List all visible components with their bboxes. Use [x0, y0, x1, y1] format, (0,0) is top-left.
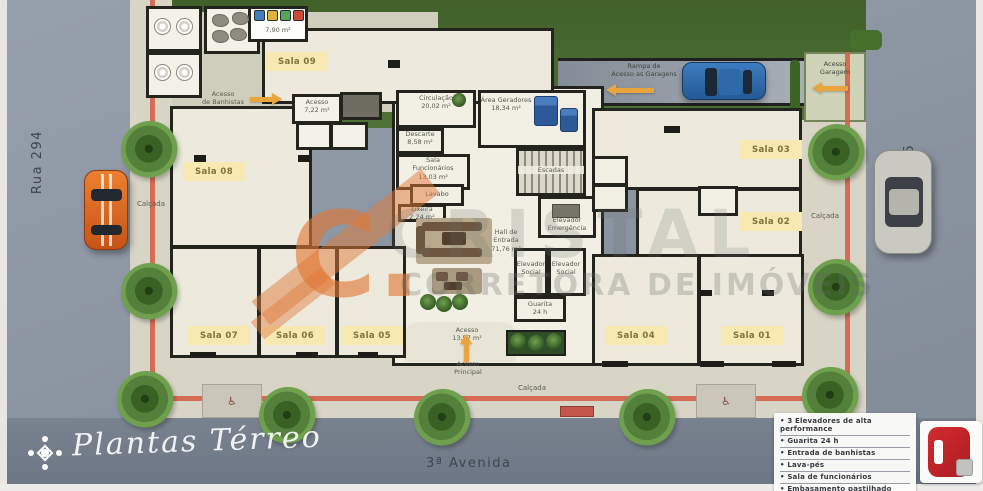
- door-step: [772, 361, 796, 367]
- brand-logo-notch: [934, 440, 943, 464]
- room-label-sala-08: Sala 08: [183, 162, 245, 181]
- gas-meter: [212, 30, 229, 43]
- door-step: [190, 352, 216, 358]
- silver-car-roof: [889, 189, 919, 215]
- wc-room: [592, 184, 628, 212]
- coffee-table: [442, 232, 466, 245]
- planter-bush: [528, 335, 544, 351]
- arrow-head: [606, 84, 616, 96]
- door-step: [602, 361, 628, 367]
- arrow-bar: [822, 86, 848, 91]
- accessible-ramp: ♿: [202, 384, 262, 418]
- legend: 3 Elevadores de alta performance Guarita…: [774, 413, 916, 491]
- street-left-label: Rua 294: [30, 130, 45, 194]
- planter-bush: [546, 333, 562, 349]
- room-label-text: Sala 03: [752, 145, 790, 155]
- palm-tree: [619, 389, 677, 447]
- legend-item: Embasamento pastilhado: [780, 484, 910, 491]
- room-label-text: Sala 08: [195, 167, 233, 177]
- brand-logo-gray-square: [956, 459, 973, 476]
- calcada-right-label: Calçada: [804, 212, 846, 221]
- room-label-sala-03: Sala 03: [740, 140, 802, 159]
- descarte-label: Descarte 8,58 m²: [396, 130, 444, 147]
- wc-room: [296, 122, 332, 150]
- edge-strip-left: [0, 0, 7, 491]
- palm-tree: [117, 371, 175, 429]
- wc-room: [330, 122, 368, 150]
- area-geradores-label: Área Geradores 18,34 m²: [480, 96, 532, 113]
- planter-bush: [510, 333, 526, 349]
- column: [298, 155, 310, 162]
- recycle-bin-red: [293, 10, 304, 21]
- generator: [534, 96, 558, 126]
- lixeiras-area-label: 7,90 m²: [252, 26, 304, 34]
- orange-car-rear-window: [91, 225, 122, 235]
- indoor-plant: [436, 296, 452, 312]
- room-label-text: Sala 04: [617, 331, 655, 341]
- blue-car-roof: [719, 69, 741, 95]
- principal-arrow: [460, 334, 472, 362]
- acesso-principal-label: Acesso Principal: [440, 360, 496, 377]
- calcada-left-label: Calçada: [132, 200, 170, 209]
- indoor-plant: [452, 294, 468, 310]
- ornament-diamond: [37, 445, 54, 462]
- wheelchair-icon: ♿: [721, 395, 731, 408]
- wheelchair-icon: ♿: [227, 395, 237, 408]
- orange-car-stripe: [101, 174, 104, 246]
- generator: [560, 108, 578, 132]
- calcada-bottom-label: Calçada: [510, 384, 554, 393]
- room-label-text: Sala 06: [276, 331, 314, 341]
- recycle-bin-green: [280, 10, 291, 21]
- column: [762, 290, 774, 296]
- room-label-sala-01: Sala 01: [721, 326, 783, 345]
- palm-tree: [414, 389, 472, 447]
- column: [664, 126, 680, 133]
- tactile-stripe-right: [845, 52, 850, 418]
- brand-logo: [920, 421, 982, 483]
- door-step: [700, 361, 724, 367]
- recycle-bin-blue: [254, 10, 265, 21]
- floor-plan-canvas: ♿ ♿ Sala 09 Sala 08 Sala 07 Sala 06 Sala…: [0, 0, 983, 491]
- room-label-sala-07: Sala 07: [188, 326, 250, 345]
- arrow-head: [460, 334, 472, 344]
- elevador-social-label: Elevador Social: [512, 260, 550, 277]
- foot-wash-basin: [154, 18, 171, 35]
- room-label-text: Sala 02: [752, 217, 790, 227]
- wc-room: [592, 156, 628, 186]
- circulacao-label: Circulação 20,02 m²: [398, 94, 474, 111]
- blue-car-rear-window: [743, 70, 752, 94]
- armchair: [456, 272, 468, 281]
- silver-car: [874, 150, 932, 254]
- palm-tree: [121, 121, 179, 179]
- elevador-emergencia-label: Elevador Emergência: [542, 216, 592, 233]
- legend-item: Sala de funcionários: [780, 472, 910, 484]
- foot-wash-basin: [154, 64, 171, 81]
- palm-tree: [808, 124, 866, 182]
- ramp-arrow: [606, 84, 654, 96]
- room-sala-04: [592, 254, 700, 366]
- arrow-bar: [616, 88, 654, 93]
- room-label-sala-02: Sala 02: [740, 212, 802, 231]
- hall-entrada-label: Hall de Entrada 71,76 m²: [482, 228, 530, 253]
- acesso-sala09-label: Acesso 7,22 m²: [294, 98, 340, 115]
- service-shaft: [340, 92, 382, 120]
- legend-item: Entrada de banhistas: [780, 448, 910, 460]
- blue-car-windshield: [705, 68, 717, 96]
- palm-tree: [121, 263, 179, 321]
- sala-funcionarios-label: Sala Funcionários 13,03 m²: [396, 156, 470, 181]
- indoor-plant: [420, 294, 436, 310]
- hedge: [850, 30, 882, 50]
- room-label-sala-04: Sala 04: [605, 326, 667, 345]
- column: [700, 290, 712, 296]
- foot-wash-basin: [176, 64, 193, 81]
- blue-car: [682, 62, 766, 100]
- gas-meter: [212, 14, 229, 27]
- accessible-ramp: ♿: [696, 384, 756, 418]
- column: [194, 155, 206, 162]
- elevador-social-label: Elevador Social: [546, 260, 586, 277]
- lixeira-label: Lixeira 2,24 m²: [398, 205, 446, 222]
- arrow-head: [812, 82, 822, 94]
- gas-meter: [230, 28, 247, 41]
- escadas-label: Escadas: [518, 166, 584, 174]
- palm-tree: [808, 259, 866, 317]
- foot-wash-basin: [176, 18, 193, 35]
- room-label-sala-06: Sala 06: [264, 326, 326, 345]
- wc-room: [698, 186, 738, 216]
- acesso-garagem-label: Acesso Garagem: [806, 60, 864, 77]
- room-label-text: Sala 01: [733, 331, 771, 341]
- sofa: [416, 226, 425, 254]
- orange-car-windshield: [91, 189, 122, 201]
- sofa: [422, 248, 482, 257]
- column: [388, 60, 400, 68]
- arrow-bar: [250, 97, 272, 102]
- gas-meter: [232, 12, 249, 25]
- room-sala-01: [698, 254, 804, 366]
- room-label-sala-09: Sala 09: [266, 52, 328, 71]
- room-label-text: Sala 05: [353, 331, 391, 341]
- recycle-bin-yellow: [267, 10, 278, 21]
- room-label-text: Sala 09: [278, 57, 316, 67]
- door-step: [296, 352, 318, 358]
- orange-car-stripe: [109, 174, 112, 246]
- ornament-icon: [22, 430, 68, 476]
- garage-arrow: [812, 82, 848, 94]
- edge-strip-right: [976, 0, 983, 491]
- legend-item: Lava-pés: [780, 460, 910, 472]
- door-step: [358, 352, 378, 358]
- banhistas-arrow: [250, 93, 282, 105]
- legend-item: Guarita 24 h: [780, 436, 910, 448]
- armchair: [436, 272, 448, 281]
- legend-item: 3 Elevadores de alta performance: [780, 416, 910, 436]
- sofa: [422, 222, 482, 231]
- acesso-banhistas-label: Acesso de Banhistas: [198, 90, 248, 107]
- room-label-text: Sala 07: [200, 331, 238, 341]
- guarita-label: Guarita 24 h: [516, 300, 564, 317]
- room-label-sala-05: Sala 05: [341, 326, 403, 345]
- bench: [560, 406, 594, 417]
- street-bottom-label: 3ª Avenida: [426, 456, 511, 471]
- lavabo-label: Lavabo: [412, 190, 462, 198]
- rampa-garagens-label: Rampa de Acesso as Garagens: [596, 62, 692, 79]
- orange-car: [84, 170, 128, 250]
- coffee-table: [444, 282, 462, 290]
- arrow-head: [272, 93, 282, 105]
